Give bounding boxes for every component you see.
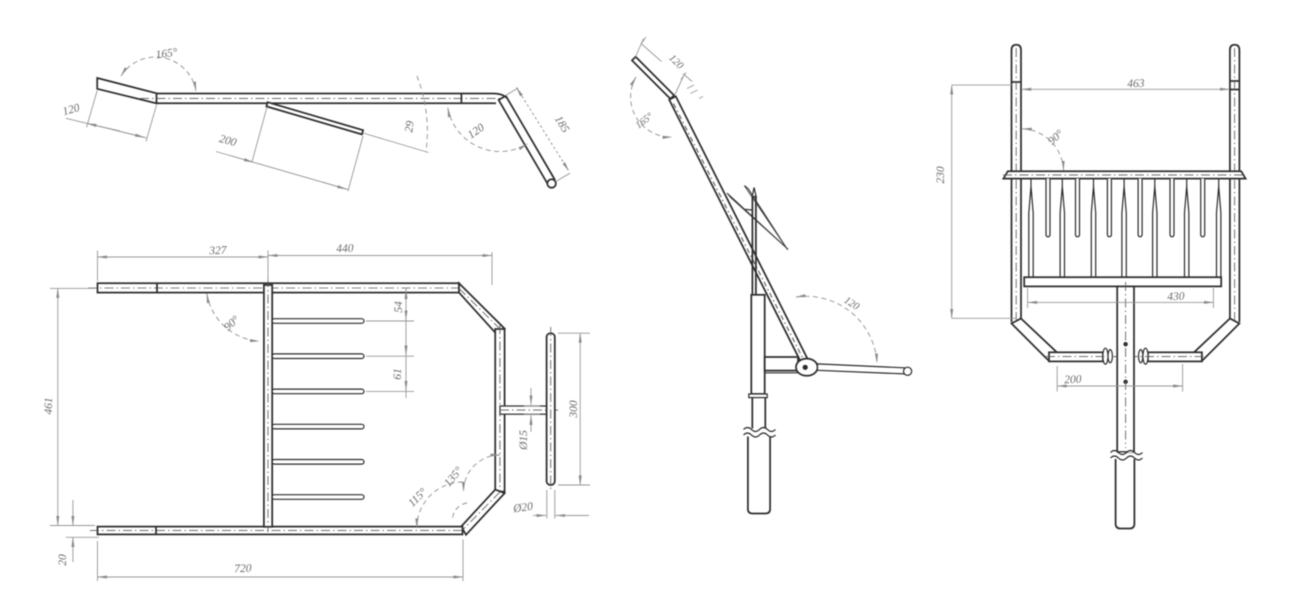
svg-text:165°: 165° — [155, 47, 179, 62]
svg-text:54: 54 — [393, 301, 405, 313]
svg-text:120: 120 — [666, 53, 686, 72]
svg-text:300: 300 — [568, 400, 580, 419]
svg-text:230: 230 — [935, 166, 947, 184]
svg-text:90°: 90° — [1046, 128, 1066, 148]
svg-text:120: 120 — [61, 102, 81, 118]
svg-text:440: 440 — [336, 243, 354, 256]
svg-text:185: 185 — [552, 114, 571, 135]
svg-text:463: 463 — [1127, 78, 1145, 91]
svg-text:720: 720 — [234, 563, 252, 576]
svg-text:115°: 115° — [406, 486, 430, 510]
svg-text:200: 200 — [218, 133, 238, 149]
svg-text:430: 430 — [1167, 291, 1185, 304]
svg-text:29: 29 — [403, 120, 416, 133]
svg-text:Ø20: Ø20 — [511, 501, 534, 516]
svg-text:120: 120 — [842, 295, 862, 313]
svg-text:20: 20 — [57, 554, 69, 566]
svg-text:120: 120 — [466, 122, 487, 142]
svg-text:200: 200 — [1064, 374, 1082, 387]
svg-text:Ø15: Ø15 — [518, 430, 530, 451]
svg-text:90°: 90° — [222, 314, 242, 334]
svg-text:61: 61 — [392, 368, 404, 380]
svg-text:327: 327 — [208, 245, 228, 258]
svg-text:165°: 165° — [634, 111, 656, 131]
svg-text:461: 461 — [43, 397, 55, 414]
